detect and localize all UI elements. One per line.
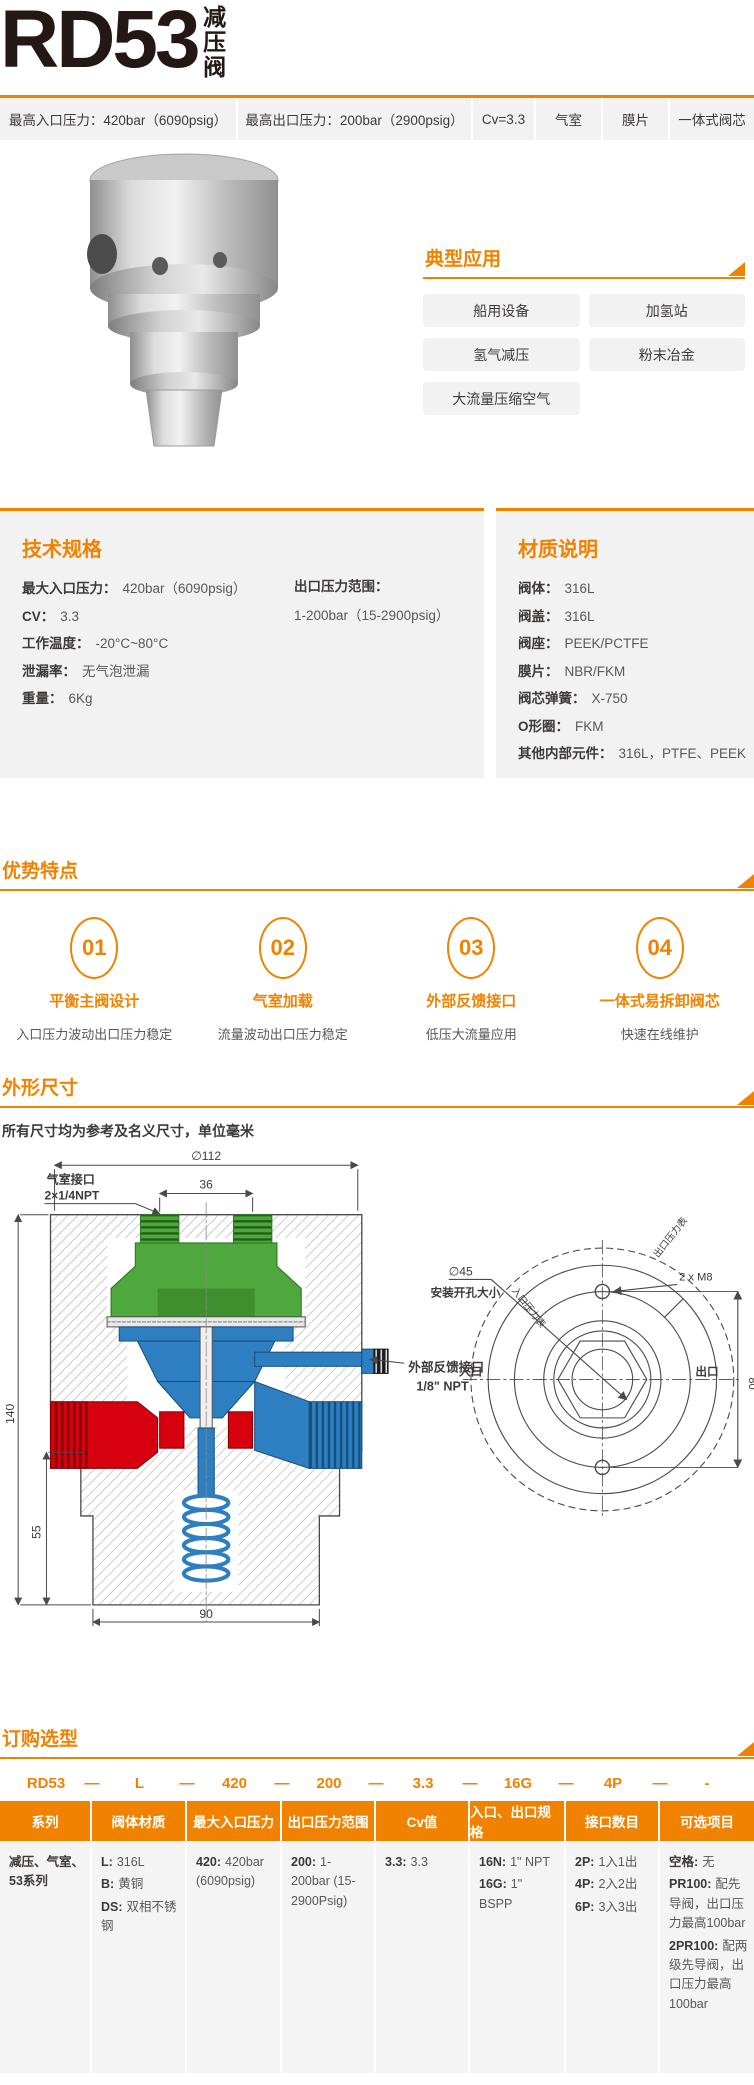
dim55-label: 55: [29, 1525, 43, 1539]
tech-spec-row: 工作温度：-20°C~80°C: [22, 630, 290, 658]
outlet-range-block: 出口压力范围： 1-200bar（15-2900psig）: [294, 575, 449, 713]
app-tag-hydrogen-reduction[interactable]: 氢气减压: [423, 338, 580, 371]
col-header-inlet-pressure: 最大入口压力: [187, 1801, 282, 1841]
code-separator: —: [369, 1775, 384, 1792]
feature-item-3: 03 外部反馈接口 低压大流量应用: [377, 917, 566, 1043]
code-port-count: 4P: [566, 1775, 660, 1792]
ordering-section: 订购选型 RD53 L 420 200 3.3 16G 4P - — — — —…: [0, 1724, 754, 2073]
dim90-label: 90: [199, 1607, 213, 1621]
applications-panel: 典型应用 船用设备 加氢站 氢气减压 粉末冶金 大流量压缩空气: [423, 244, 745, 415]
material-row: 膜片：NBR/FKM: [518, 658, 734, 686]
material-row: 阀体：316L: [518, 575, 734, 603]
code-separator: —: [463, 1775, 478, 1792]
materials-title: 材质说明: [518, 533, 734, 562]
product-photo: [64, 142, 309, 454]
material-row: O形圈：FKM: [518, 713, 734, 741]
material-row: 阀芯弹簧：X-750: [518, 685, 734, 713]
tech-spec-row: CV：3.3: [22, 603, 290, 631]
tech-spec-row: 重量：6Kg: [22, 685, 290, 713]
feature-item-1: 01 平衡主阀设计 入口压力波动出口压力稳定: [0, 917, 189, 1043]
ordering-code-row: RD53 L 420 200 3.3 16G 4P - — — — — — — …: [0, 1775, 754, 1792]
col-header-cv: Cv值: [376, 1801, 470, 1841]
code-inlet-pressure: 420: [187, 1775, 282, 1792]
material-row: 其他内部元件：316L，PTFE、PEEK: [518, 740, 734, 768]
tech-spec-row: 泄漏率：无气泡泄漏: [22, 658, 290, 686]
spec-max-outlet-pressure: 最高出口压力：200bar（2900psig）: [238, 98, 473, 140]
features-title: 优势特点: [2, 856, 754, 883]
tech-specs-list: 最大入口压力：420bar（6090psig） CV：3.3 工作温度：-20°…: [22, 575, 290, 713]
code-series: RD53: [0, 1775, 92, 1792]
col-header-body-material: 阀体材质: [92, 1801, 187, 1841]
cross-section-view: [51, 1203, 389, 1622]
ordering-table-body: 减压、气室、53系列 L:316L B:黄铜 DS:双相不锈钢 420:420b…: [0, 1841, 754, 2073]
app-tag-hydrogen-station[interactable]: 加氢站: [589, 294, 746, 327]
mount-hole-label: 安装开孔大小: [431, 1286, 501, 1300]
feature-number-badge: 02: [259, 917, 307, 979]
col-body-outlet-range: 200:1-200bar (15-2900Psig): [282, 1841, 376, 2073]
outlet-label: 出口: [695, 1364, 718, 1378]
dimensions-title: 外形尺寸: [2, 1073, 754, 1100]
app-tag-marine[interactable]: 船用设备: [423, 294, 580, 327]
code-outlet-range: 200: [282, 1775, 376, 1792]
tech-specs-card: 技术规格 最大入口压力：420bar（6090psig） CV：3.3 工作温度…: [0, 508, 484, 778]
col-body-port-count: 2P:1入1出 4P:2入2出 6P:3入3出: [566, 1841, 660, 2073]
col-header-options: 可选项目: [660, 1801, 754, 1841]
col-header-outlet-range: 出口压力范围: [282, 1801, 376, 1841]
col-header-port-spec: 入口、出口规格: [470, 1801, 566, 1841]
features-heading: 优势特点: [0, 856, 754, 891]
dimensions-note: 所有尺寸均为参考及名义尺寸，单位毫米: [2, 1121, 754, 1141]
materials-card: 材质说明 阀体：316L 阀盖：316L 阀座：PEEK/PCTFE 膜片：NB…: [496, 508, 754, 778]
heading-triangle-icon: [737, 874, 754, 888]
features-row: 01 平衡主阀设计 入口压力波动出口压力稳定 02 气室加载 流量波动出口压力稳…: [0, 917, 754, 1043]
spec-dome: 气室: [536, 98, 603, 140]
feedback-port-size: 1/8" NPT: [416, 1380, 469, 1394]
spec-cartridge: 一体式阀芯: [670, 98, 754, 140]
product-model-title: RD53: [0, 0, 198, 80]
applications-heading: 典型应用: [423, 244, 745, 279]
feature-number-badge: 01: [70, 917, 118, 979]
col-body-series: 减压、气室、53系列: [0, 1841, 92, 2073]
code-separator: —: [180, 1775, 195, 1792]
applications-grid: 船用设备 加氢站 氢气减压 粉末冶金 大流量压缩空气: [423, 294, 745, 415]
valve-drawing: ∅112 36 140 55 90 气室接口 2×1/4NPT 外部反馈接口 1…: [6, 1147, 754, 1713]
dim36-label: 36: [199, 1177, 213, 1191]
ordering-table-header: 系列 阀体材质 最大入口压力 出口压力范围 Cv值 入口、出口规格 接口数目 可…: [0, 1801, 754, 1841]
feature-number-badge: 04: [636, 917, 684, 979]
code-separator: —: [559, 1775, 574, 1792]
heading-triangle-icon: [728, 262, 745, 276]
code-separator: —: [275, 1775, 290, 1792]
features-section: 优势特点 01 平衡主阀设计 入口压力波动出口压力稳定 02 气室加载 流量波动…: [0, 856, 754, 1043]
col-body-inlet-pressure: 420:420bar (6090psig): [187, 1841, 282, 2073]
material-row: 阀盖：316L: [518, 603, 734, 631]
dimensions-section: 外形尺寸 所有尺寸均为参考及名义尺寸，单位毫米: [0, 1073, 754, 1718]
dim80-label: 80: [746, 1377, 754, 1389]
ordering-heading: 订购选型: [0, 1724, 754, 1759]
code-separator: —: [85, 1775, 100, 1792]
applications-title: 典型应用: [425, 244, 745, 271]
outlet-gauge-label: 出口压力表: [651, 1215, 690, 1261]
code-separator: —: [653, 1775, 668, 1792]
dimension-drawings: ∅112 36 140 55 90 气室接口 2×1/4NPT 外部反馈接口 1…: [0, 1147, 754, 1718]
product-type-vertical: 减压阀: [201, 5, 224, 87]
col-header-series: 系列: [0, 1801, 92, 1841]
m8-label: 2 x M8: [679, 1271, 712, 1283]
quick-spec-bar: 最高入口压力：420bar（6090psig） 最高出口压力：200bar（29…: [0, 95, 754, 140]
material-row: 阀座：PEEK/PCTFE: [518, 630, 734, 658]
col-body-cv: 3.3:3.3: [376, 1841, 470, 2073]
code-cv: 3.3: [376, 1775, 470, 1792]
ordering-title: 订购选型: [2, 1724, 754, 1751]
air-port-label: 气室接口: [45, 1171, 94, 1186]
app-tag-powder-metallurgy[interactable]: 粉末冶金: [589, 338, 746, 371]
heading-triangle-icon: [737, 1091, 754, 1105]
dimensions-heading: 外形尺寸: [0, 1073, 754, 1108]
tech-spec-row: 最大入口压力：420bar（6090psig）: [22, 575, 290, 603]
col-header-port-count: 接口数目: [566, 1801, 660, 1841]
inlet-label: 入口: [459, 1365, 482, 1378]
dim140-label: 140: [6, 1403, 17, 1423]
feature-item-4: 04 一体式易拆卸阀芯 快速在线维护: [566, 917, 754, 1043]
dia45-label: ∅45: [449, 1264, 473, 1278]
heading-triangle-icon: [737, 1742, 754, 1756]
hero-section: 典型应用 船用设备 加氢站 氢气减压 粉末冶金 大流量压缩空气: [0, 140, 754, 498]
col-body-body-material: L:316L B:黄铜 DS:双相不锈钢: [92, 1841, 187, 2073]
spec-diaphragm: 膜片: [603, 98, 670, 140]
tech-specs-title: 技术规格: [22, 533, 464, 562]
code-options: -: [660, 1775, 754, 1792]
dia112-label: ∅112: [191, 1149, 221, 1163]
feature-item-2: 02 气室加载 流量波动出口压力稳定: [189, 917, 378, 1043]
col-body-options: 空格:无 PR100:配先导阀，出口压力最高100bar 2PR100:配两级先…: [660, 1841, 754, 2073]
feature-number-badge: 03: [447, 917, 495, 979]
code-body-material: L: [92, 1775, 187, 1792]
page-header: RD53 减压阀: [0, 0, 754, 95]
col-body-port-spec: 16N:1" NPT 16G:1" BSPP: [470, 1841, 566, 2073]
code-port-spec: 16G: [470, 1775, 566, 1792]
app-tag-compressed-air[interactable]: 大流量压缩空气: [423, 382, 580, 415]
air-port-size: 2×1/4NPT: [44, 1189, 99, 1203]
spec-cv: Cv=3.3: [473, 98, 536, 140]
datasheet-page: RD53 减压阀 最高入口压力：420bar（6090psig） 最高出口压力：…: [0, 0, 754, 2085]
info-cards: 技术规格 最大入口压力：420bar（6090psig） CV：3.3 工作温度…: [0, 508, 754, 778]
spec-max-inlet-pressure: 最高入口压力：420bar（6090psig）: [0, 98, 238, 140]
